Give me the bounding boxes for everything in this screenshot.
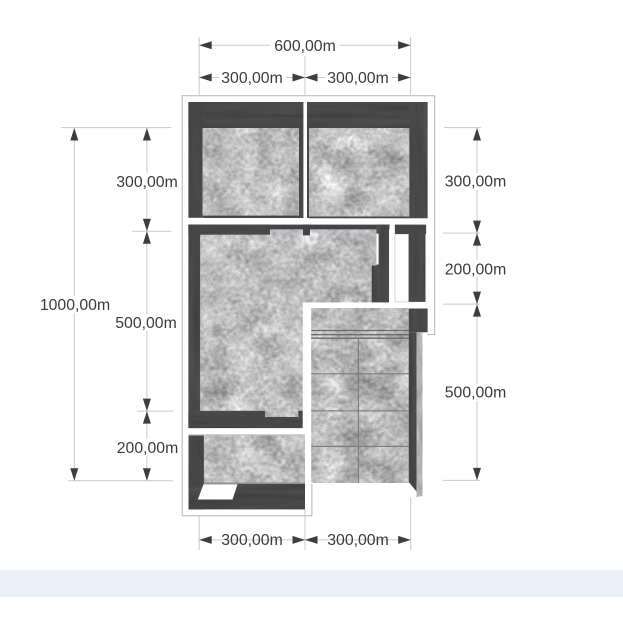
svg-text:500,00m: 500,00m [445, 385, 506, 402]
svg-text:300,00m: 300,00m [221, 532, 282, 549]
svg-text:300,00m: 300,00m [221, 70, 282, 87]
svg-text:300,00m: 300,00m [327, 70, 388, 87]
svg-text:1000,00m: 1000,00m [40, 297, 110, 314]
svg-text:300,00m: 300,00m [116, 174, 177, 191]
svg-text:300,00m: 300,00m [327, 532, 388, 549]
svg-text:200,00m: 200,00m [117, 440, 178, 457]
svg-text:500,00m: 500,00m [115, 315, 176, 332]
svg-text:300,00m: 300,00m [445, 174, 506, 191]
svg-text:200,00m: 200,00m [445, 262, 506, 279]
svg-text:600,00m: 600,00m [274, 38, 335, 55]
